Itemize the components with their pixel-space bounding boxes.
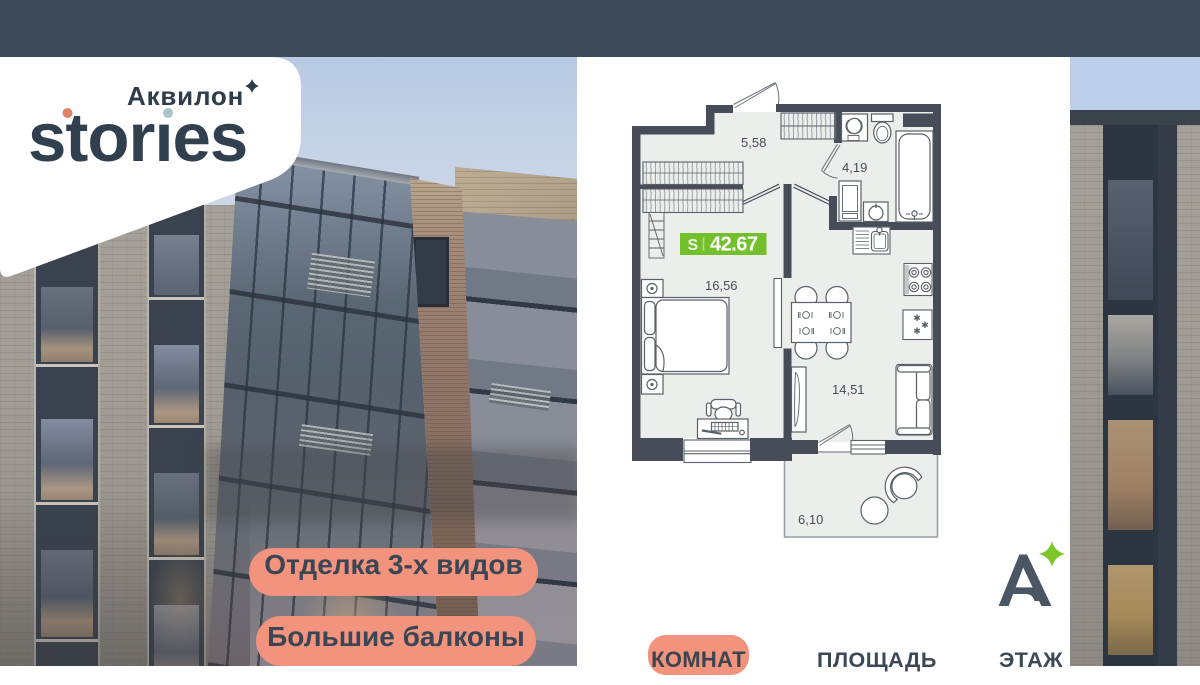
svg-text:16,56: 16,56 (705, 278, 738, 293)
svg-text:✱: ✱ (913, 313, 921, 323)
svg-text:4,19: 4,19 (842, 160, 867, 175)
svg-text:5,58: 5,58 (741, 135, 766, 150)
svg-text:42.67: 42.67 (710, 234, 758, 256)
svg-text:S: S (688, 237, 699, 254)
svg-text:✱: ✱ (921, 320, 929, 330)
svg-text:14,51: 14,51 (832, 382, 865, 397)
svg-text:✱: ✱ (913, 326, 921, 336)
svg-text:6,10: 6,10 (798, 512, 823, 527)
